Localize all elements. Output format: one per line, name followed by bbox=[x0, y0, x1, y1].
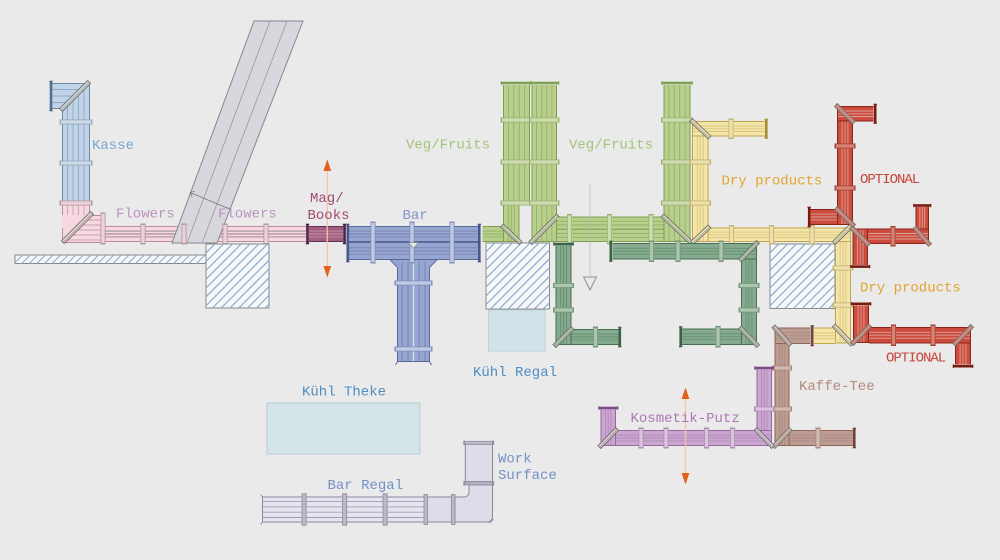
svg-text:OPTIONAL: OPTIONAL bbox=[886, 351, 946, 367]
svg-text:Mag/: Mag/ bbox=[310, 191, 344, 207]
svg-text:Surface: Surface bbox=[498, 468, 557, 484]
svg-text:Kühl Regal: Kühl Regal bbox=[473, 365, 557, 381]
svg-text:Flowers: Flowers bbox=[218, 207, 277, 223]
svg-text:Bar Regal: Bar Regal bbox=[328, 478, 404, 494]
svg-text:Dry products: Dry products bbox=[722, 174, 823, 190]
svg-text:Veg/Fruits: Veg/Fruits bbox=[569, 138, 653, 154]
svg-text:Bar: Bar bbox=[403, 208, 428, 224]
svg-text:Books: Books bbox=[308, 208, 350, 224]
svg-text:Veg/Fruits: Veg/Fruits bbox=[406, 138, 490, 154]
svg-text:Kühl Theke: Kühl Theke bbox=[302, 385, 386, 401]
svg-text:Flowers: Flowers bbox=[116, 207, 175, 223]
svg-text:Kosmetik-Putz: Kosmetik-Putz bbox=[631, 411, 740, 427]
svg-text:Kaffe-Tee: Kaffe-Tee bbox=[799, 379, 875, 395]
svg-text:OPTIONAL: OPTIONAL bbox=[860, 172, 920, 188]
svg-text:Work: Work bbox=[498, 452, 532, 468]
svg-text:Kasse: Kasse bbox=[92, 138, 134, 154]
svg-text:Dry products: Dry products bbox=[860, 281, 961, 297]
